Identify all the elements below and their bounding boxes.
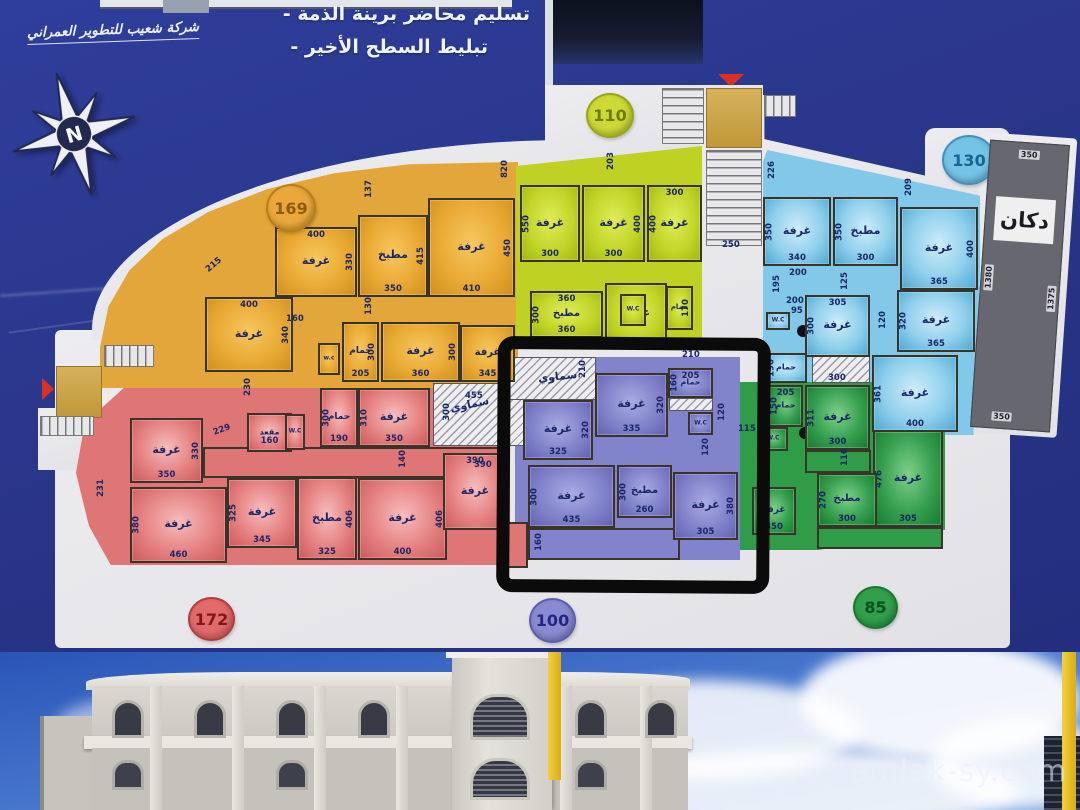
- room-label: غرفة: [360, 511, 445, 524]
- building-pillar: [232, 686, 244, 810]
- arched-window: [575, 760, 607, 790]
- room-label: W.C: [622, 306, 644, 313]
- room-dimension: 300: [522, 249, 578, 259]
- unit-number-badge: 169: [266, 184, 316, 232]
- room: غرفة311300: [805, 385, 870, 450]
- room-dimension: 460: [132, 550, 225, 560]
- dimension-label: 300: [828, 373, 846, 383]
- dimension-label: 200: [786, 296, 804, 306]
- room-dimension: 350: [132, 470, 201, 480]
- dimension-label: 390: [474, 460, 492, 470]
- elevator-shaft: [56, 366, 102, 418]
- room-label: غرفة: [899, 313, 973, 326]
- tower-window: [470, 694, 530, 740]
- room-dimension: 300: [819, 514, 875, 524]
- room-dimension: 320: [899, 312, 909, 330]
- room: W.C: [285, 414, 305, 450]
- room: غرفة476305: [873, 430, 943, 527]
- room: غرفة400365: [900, 207, 978, 290]
- staircase: [662, 88, 704, 144]
- room-dimension: 400: [649, 215, 659, 233]
- room-dimension: 305: [875, 514, 941, 524]
- room: مطبخ350300: [833, 197, 898, 266]
- room: حمام190: [765, 353, 807, 383]
- room-dimension: 270: [819, 491, 829, 509]
- room: غرفة330350: [130, 418, 203, 483]
- room-dimension: 300: [367, 343, 377, 361]
- unit-number-badge: 85: [853, 586, 898, 629]
- room-dimension: 150: [770, 397, 780, 415]
- room: حمام300190: [320, 388, 358, 447]
- room-dimension: 325: [229, 504, 239, 522]
- room: مطبخ415350: [358, 215, 428, 297]
- room-label: غرفة: [277, 254, 355, 267]
- room: غرفة361400: [872, 355, 958, 432]
- building-pillar: [560, 686, 572, 810]
- staircase: [104, 345, 154, 367]
- staircase: [706, 150, 762, 246]
- watermark: amlak-sy.com: [850, 754, 1067, 789]
- dimension-label: 95: [791, 306, 803, 316]
- shop-dimension: 350: [991, 411, 1012, 421]
- building-pillar: [150, 686, 162, 810]
- dimension-label: 250: [722, 240, 740, 250]
- dimension-label: 125: [840, 272, 850, 290]
- billboard-photo: شركة شعيب للتطوير العمراني - تسليم محاضر…: [0, 0, 1080, 810]
- room-dimension: 350: [360, 434, 428, 444]
- room-dimension: 550: [522, 215, 532, 233]
- room-dimension: 350: [835, 223, 845, 241]
- yellow-pole: [548, 652, 561, 780]
- room-dimension: 340: [765, 253, 829, 263]
- room-dimension: 350: [360, 284, 426, 294]
- note-line-2: - تبليط السطح الأخير: [190, 36, 530, 58]
- staircase: [40, 416, 94, 436]
- room-label: غرفة: [207, 326, 291, 339]
- room-dimension: 310: [360, 409, 370, 427]
- room-dimension: 400: [966, 240, 976, 258]
- dimension-label: 226: [767, 161, 777, 179]
- room-dimension: 360: [383, 369, 458, 379]
- room-label: غرفة: [132, 517, 225, 530]
- room-dimension: 330: [191, 442, 201, 460]
- room-dimension: 300: [532, 306, 542, 324]
- unit-number-badge: 172: [188, 597, 235, 641]
- note-line-1: - تسليم محاضر برينة الذمة: [190, 3, 530, 25]
- elevator-shaft: [706, 88, 762, 148]
- building-pillar: [396, 686, 408, 810]
- room-dimension: 300: [835, 253, 896, 263]
- room: غرفة406400: [358, 478, 447, 560]
- room: مطبخ406325: [297, 477, 357, 560]
- building-wing: [40, 716, 92, 810]
- compass-rose-icon: N: [0, 50, 156, 217]
- room: غرفة300360: [381, 322, 460, 382]
- staircase: [764, 95, 796, 117]
- room-label: W.C: [768, 317, 788, 324]
- building-pillar: [314, 686, 326, 810]
- room: حمام170: [666, 286, 693, 330]
- room-dimension: 325: [299, 547, 355, 557]
- arched-window: [358, 700, 390, 738]
- room: غرفة400330: [275, 227, 357, 297]
- room: غرفة300400: [647, 185, 702, 262]
- photo-frame-edge: [545, 0, 553, 88]
- room-dimension: 361: [874, 385, 884, 403]
- room: غرفة310350: [358, 388, 430, 447]
- room-dimension: 400: [874, 419, 956, 429]
- room-dimension: 170: [681, 299, 691, 317]
- room-label: w.c: [320, 355, 338, 362]
- room-label: مطبخ: [532, 308, 601, 319]
- room: W.C: [620, 294, 646, 326]
- room: مطبخ360300360: [530, 291, 603, 338]
- room-dimension: 350: [765, 223, 775, 241]
- unit-number-badge: 100: [529, 598, 576, 643]
- room-dimension: 365: [902, 277, 976, 287]
- room-dimension: 300: [448, 343, 458, 361]
- room-dimension: 205: [344, 369, 377, 379]
- room-label: غرفة: [383, 344, 458, 357]
- shop-dimension: 1375: [1046, 285, 1057, 312]
- room-dimension: 300: [807, 437, 868, 447]
- room-dimension: 340: [281, 326, 291, 344]
- room-dimension: 400: [360, 547, 445, 557]
- room-label: غرفة: [875, 470, 941, 483]
- dimension-label: 195: [772, 275, 782, 293]
- room-dimension: 311: [807, 409, 817, 427]
- room-dimension: 365: [899, 339, 973, 349]
- dimension-label: 209: [904, 178, 914, 196]
- room-label: مقعد: [249, 427, 290, 436]
- shop-label: دكان: [993, 196, 1056, 244]
- room-label: W.C: [287, 428, 303, 435]
- arched-window: [194, 700, 226, 738]
- room: غرفة400300: [582, 185, 645, 262]
- arched-window: [112, 760, 144, 790]
- room-dimension: 160: [249, 436, 290, 446]
- room: مطبخ270300: [817, 473, 877, 527]
- room-dimension: 300: [649, 188, 700, 198]
- room-dimension: 300: [322, 409, 332, 427]
- dimension-label: 120: [878, 311, 888, 329]
- dimension-label: 230: [243, 378, 253, 396]
- room-dimension: 380: [132, 516, 142, 534]
- room-dimension: 360: [532, 294, 601, 304]
- room-label: غرفة: [360, 409, 428, 422]
- room-dimension: 400: [207, 300, 291, 310]
- arched-window: [276, 700, 308, 738]
- highlight-frame: [496, 336, 771, 594]
- dimension-label: 231: [96, 479, 106, 497]
- room-dimension: 406: [345, 510, 355, 528]
- elevator-marker-icon: [42, 378, 54, 400]
- room-dimension: 400: [633, 215, 643, 233]
- room: غرفة305300: [805, 295, 870, 357]
- room-dimension: 360: [532, 325, 601, 335]
- room-dimension: 450: [503, 239, 513, 257]
- tower-window: [470, 758, 530, 800]
- room: غرفة400340: [205, 297, 293, 372]
- arched-window: [575, 700, 607, 738]
- dimension-label: 140: [398, 450, 408, 468]
- room: غرفة550300: [520, 185, 580, 262]
- room-label: غرفة: [430, 239, 513, 252]
- shop-dimension: 1380: [983, 263, 994, 290]
- room-label: غرفة: [902, 240, 976, 253]
- room: W.C: [766, 312, 790, 330]
- room-dimension: 415: [416, 247, 426, 265]
- room: حمام205150: [768, 385, 803, 427]
- room-label: غرفة: [874, 385, 956, 398]
- room-dimension: 410: [430, 284, 513, 294]
- shop-dimension: 350: [1019, 150, 1040, 160]
- room-dimension: 300: [807, 317, 817, 335]
- dimension-label: 160: [286, 314, 304, 324]
- room: غرفة450410: [428, 198, 515, 297]
- notes-block: - تسليم محاضر برينة الذمة - تبليط السطح …: [190, 3, 530, 58]
- room-dimension: 190: [322, 434, 356, 444]
- dimension-label: 130: [364, 297, 374, 315]
- corridor: [817, 527, 943, 549]
- room-dimension: 305: [807, 298, 868, 308]
- unit-number-badge: 110: [586, 93, 634, 138]
- room: غرفة325345: [227, 478, 297, 548]
- room-dimension: 330: [345, 253, 355, 271]
- room-label: غرفة: [229, 505, 295, 518]
- dimension-label: 203: [606, 152, 616, 170]
- dimension-label: 820: [500, 160, 510, 178]
- room-dimension: 345: [229, 535, 295, 545]
- top-building-photo: [553, 0, 703, 64]
- room: w.c: [318, 343, 340, 375]
- arched-window: [645, 700, 677, 738]
- room: حمام300205: [342, 322, 379, 382]
- corridor: [805, 450, 871, 473]
- arched-window: [112, 700, 144, 738]
- room: غرفة320365: [897, 290, 975, 352]
- room: غرفة350340: [763, 197, 831, 266]
- arched-window: [276, 760, 308, 790]
- building-tower-cap: [446, 652, 558, 658]
- dimension-label: 137: [364, 180, 374, 198]
- dimension-label: 200: [789, 268, 807, 278]
- room-dimension: 300: [584, 249, 643, 259]
- room: غرفة380460: [130, 487, 227, 563]
- dimension-label: 110: [840, 448, 850, 466]
- bottom-building-photo: amlak-sy.com: [0, 652, 1080, 810]
